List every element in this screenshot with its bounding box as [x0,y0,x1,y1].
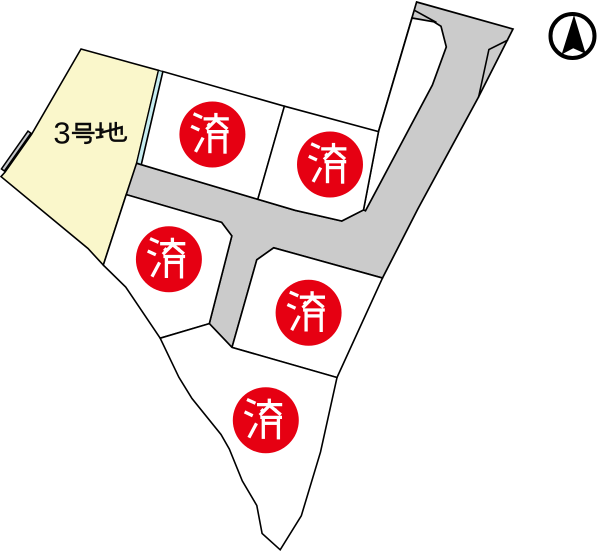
svg-text:3: 3 [53,116,70,151]
